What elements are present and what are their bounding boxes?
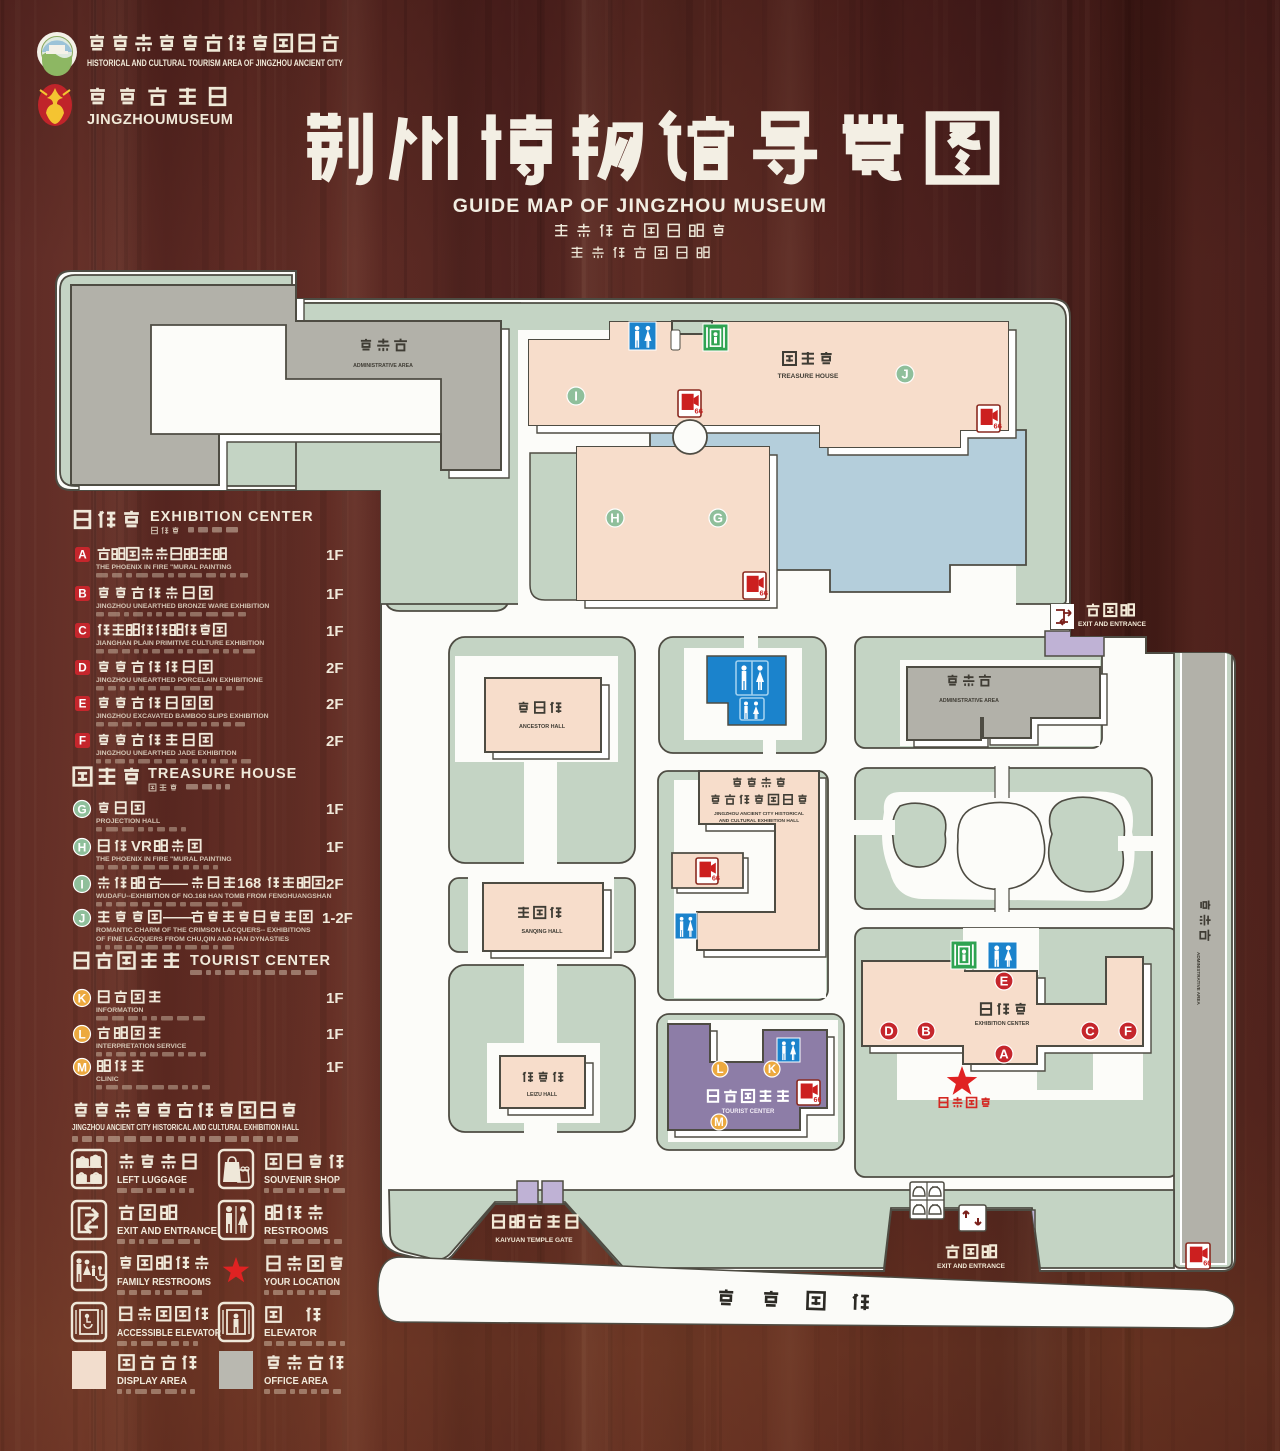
svg-text:ANCESTOR HALL: ANCESTOR HALL (519, 724, 566, 730)
svg-text:FAMILY RESTROOMS: FAMILY RESTROOMS (117, 1277, 211, 1288)
svg-text:DISPLAY AREA: DISPLAY AREA (117, 1376, 187, 1387)
svg-text:1F: 1F (326, 990, 344, 1007)
svg-text:LEIZU HALL: LEIZU HALL (527, 1092, 558, 1098)
svg-text:ELEVATOR: ELEVATOR (264, 1328, 318, 1339)
svg-text:1F: 1F (326, 1059, 344, 1076)
svg-text:OF FINE LACQUERS FROM CHU,QIN: OF FINE LACQUERS FROM CHU,QIN AND HAN DY… (96, 936, 290, 943)
svg-text:WUDAFU--EXHIBITION OF NO.168 H: WUDAFU--EXHIBITION OF NO.168 HAN TOMB FR… (96, 893, 332, 900)
svg-text:I: I (80, 877, 83, 891)
svg-text:ACCESSIBLE ELEVATOR: ACCESSIBLE ELEVATOR (117, 1328, 222, 1339)
svg-text:66: 66 (712, 874, 720, 883)
svg-text:RESTROOMS: RESTROOMS (264, 1226, 329, 1237)
svg-text:VR: VR (131, 838, 152, 855)
svg-text:EXHIBITION CENTER: EXHIBITION CENTER (150, 509, 314, 525)
svg-text:INTERPRETATION SERVICE: INTERPRETATION SERVICE (96, 1043, 187, 1050)
svg-text:YOUR LOCATION: YOUR LOCATION (264, 1277, 340, 1288)
svg-text:M: M (714, 1116, 724, 1129)
svg-text:ROMANTIC CHARM OF THE CRIMSON: ROMANTIC CHARM OF THE CRIMSON LACQUERS--… (96, 927, 311, 934)
svg-text:L: L (716, 1063, 723, 1076)
svg-text:THE PHOENIX IN FIRE "MURAL PAI: THE PHOENIX IN FIRE "MURAL PAINTING (96, 564, 232, 571)
svg-text:JINGZHOU UNEARTHED JADE EXHIBI: JINGZHOU UNEARTHED JADE EXHIBITION (96, 750, 237, 757)
svg-text:G: G (713, 511, 723, 526)
svg-text:66: 66 (814, 1097, 822, 1104)
svg-text:JINGZHOU EXCAVATED BAMBOO SLIP: JINGZHOU EXCAVATED BAMBOO SLIPS EXHIBITI… (96, 713, 269, 720)
svg-text:1F: 1F (326, 801, 344, 818)
svg-text:LEFT LUGGAGE: LEFT LUGGAGE (117, 1175, 187, 1186)
svg-text:THE PHOENIX IN FIRE "MURAL PAI: THE PHOENIX IN FIRE "MURAL PAINTING (96, 856, 232, 863)
svg-text:JINGZHOUMUSEUM: JINGZHOUMUSEUM (87, 112, 233, 128)
svg-text:JINGZHOU UNEARTHED BRONZE WARE: JINGZHOU UNEARTHED BRONZE WARE EXHIBITIO… (96, 603, 269, 610)
svg-text:M: M (77, 1060, 87, 1074)
svg-text:SOUVENIR SHOP: SOUVENIR SHOP (264, 1175, 340, 1186)
svg-text:CLINIC: CLINIC (96, 1076, 119, 1083)
svg-text:INFORMATION: INFORMATION (96, 1007, 144, 1014)
svg-text:JIANGHAN PLAIN PRIMITIVE CULTU: JIANGHAN PLAIN PRIMITIVE CULTURE EXHIBIT… (96, 640, 264, 647)
svg-text:EXIT AND ENTRANCE: EXIT AND ENTRANCE (1078, 621, 1147, 628)
svg-text:C: C (78, 624, 87, 637)
svg-text:ADMINISTRATIVE AREA: ADMINISTRATIVE AREA (939, 698, 999, 704)
svg-text:J: J (901, 367, 908, 382)
svg-text:168: 168 (237, 876, 261, 892)
svg-text:E: E (79, 697, 87, 710)
svg-text:H: H (610, 511, 619, 526)
svg-text:F: F (1124, 1024, 1132, 1039)
svg-text:PROJECTION HALL: PROJECTION HALL (96, 818, 160, 825)
svg-text:EXIT AND ENTRANCE: EXIT AND ENTRANCE (937, 1263, 1006, 1270)
svg-text:66: 66 (994, 421, 1002, 430)
svg-text:C: C (1085, 1024, 1095, 1039)
svg-text:——: —— (160, 875, 188, 891)
svg-text:B: B (921, 1024, 930, 1039)
svg-text:TREASURE HOUSE: TREASURE HOUSE (778, 373, 839, 380)
svg-text:2F: 2F (326, 876, 344, 893)
svg-text:1F: 1F (326, 839, 344, 856)
svg-text:E: E (1000, 974, 1009, 989)
svg-text:GUIDE MAP OF JINGZHOU MUSEUM: GUIDE MAP OF JINGZHOU MUSEUM (453, 195, 828, 217)
svg-text:AND CULTURAL EXHIBITION HALL: AND CULTURAL EXHIBITION HALL (719, 818, 799, 824)
svg-text:G: G (77, 802, 86, 816)
svg-text:A: A (78, 548, 87, 561)
svg-text:2F: 2F (326, 733, 344, 750)
svg-text:K: K (78, 991, 87, 1005)
svg-text:ADMINISTRATIVE AREA: ADMINISTRATIVE AREA (353, 363, 413, 369)
svg-text:2F: 2F (326, 660, 344, 677)
svg-text:TREASURE HOUSE: TREASURE HOUSE (148, 766, 297, 782)
svg-text:1F: 1F (326, 623, 344, 640)
svg-text:J: J (79, 911, 86, 925)
svg-text:2F: 2F (326, 696, 344, 713)
svg-text:HISTORICAL AND CULTURAL TOURIS: HISTORICAL AND CULTURAL TOURISM AREA OF … (87, 58, 343, 68)
svg-text:B: B (78, 587, 86, 600)
svg-text:66: 66 (1203, 1259, 1211, 1268)
svg-text:ADMINISTRATIVE AREA: ADMINISTRATIVE AREA (1196, 952, 1201, 1006)
svg-text:TOURIST CENTER: TOURIST CENTER (190, 953, 331, 969)
svg-text:1F: 1F (326, 586, 344, 603)
svg-text:L: L (78, 1027, 85, 1041)
svg-text:EXIT AND ENTRANCE: EXIT AND ENTRANCE (117, 1226, 217, 1237)
svg-text:I: I (574, 389, 578, 404)
svg-text:OFFICE AREA: OFFICE AREA (264, 1376, 328, 1387)
svg-text:D: D (78, 661, 86, 674)
svg-text:F: F (79, 734, 86, 747)
svg-text:66: 66 (760, 588, 768, 597)
svg-text:EXHIBITION CENTER: EXHIBITION CENTER (975, 1021, 1030, 1027)
svg-text:JINGZHOU ANCIENT CITY HISTORIC: JINGZHOU ANCIENT CITY HISTORICAL (714, 811, 804, 817)
svg-text:1F: 1F (326, 547, 344, 564)
svg-text:H: H (78, 840, 87, 854)
svg-text:JINGZHOU UNEARTHED PORCELAIN E: JINGZHOU UNEARTHED PORCELAIN EXHIBITIONE (96, 677, 263, 684)
svg-text:D: D (884, 1024, 893, 1039)
svg-text:——: —— (163, 909, 193, 926)
svg-text:KAIYUAN TEMPLE GATE: KAIYUAN TEMPLE GATE (495, 1237, 573, 1244)
svg-text:TOURIST CENTER: TOURIST CENTER (722, 1109, 775, 1115)
svg-text:1-2F: 1-2F (322, 910, 353, 927)
svg-text:1F: 1F (326, 1026, 344, 1043)
svg-text:66: 66 (695, 406, 703, 415)
svg-text:JINGZHOU ANCIENT CITY HISTORIC: JINGZHOU ANCIENT CITY HISTORICAL AND CUL… (72, 1122, 299, 1132)
svg-text:A: A (999, 1047, 1009, 1062)
svg-text:K: K (768, 1063, 777, 1076)
svg-text:SANQING HALL: SANQING HALL (521, 929, 563, 935)
